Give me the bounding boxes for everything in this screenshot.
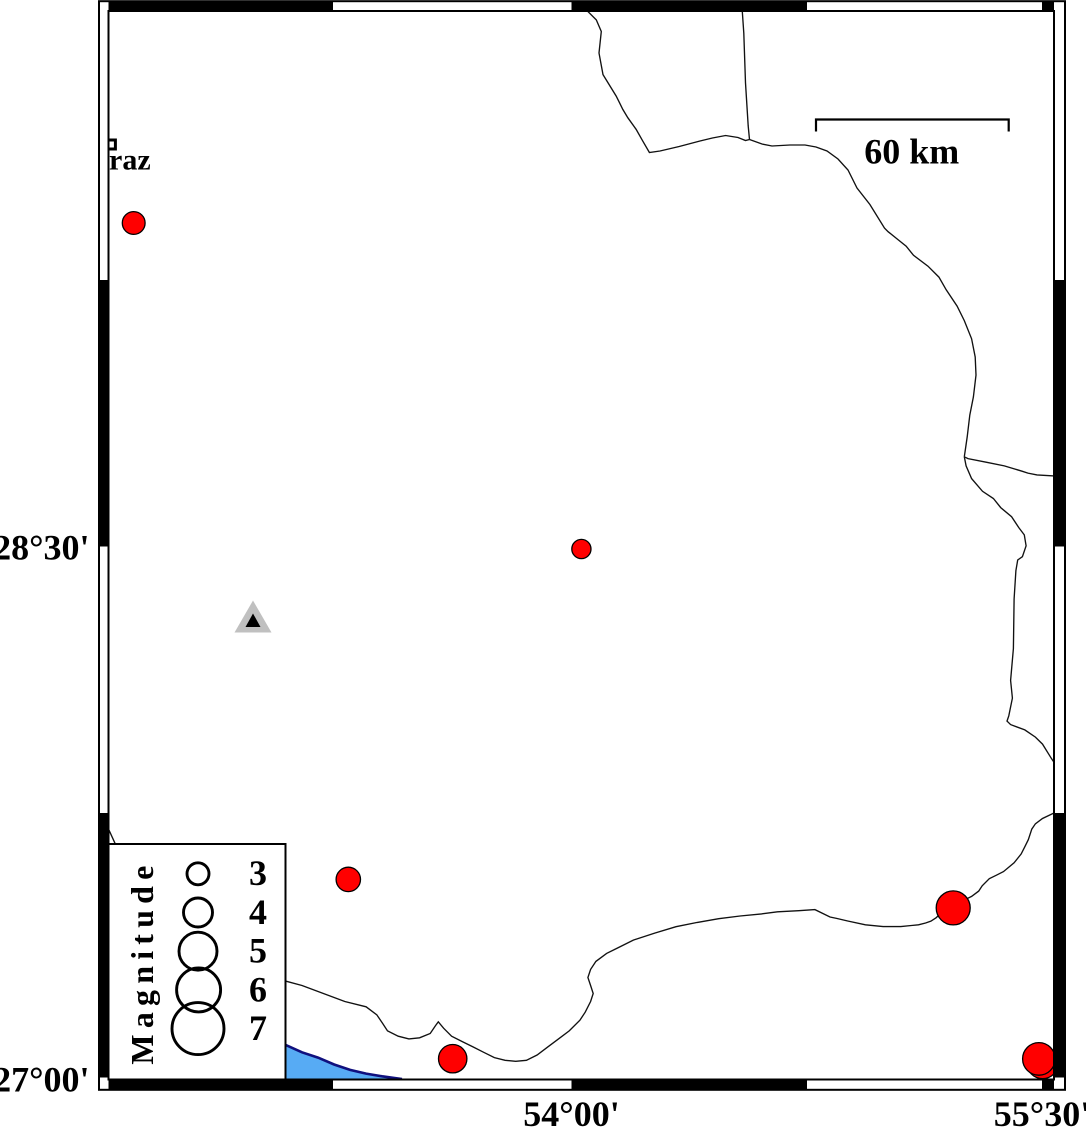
svg-text:raz: raz xyxy=(109,144,151,177)
svg-text:5: 5 xyxy=(249,931,267,971)
svg-text:6: 6 xyxy=(249,969,267,1009)
svg-text:Magnitude: Magnitude xyxy=(124,859,160,1064)
svg-text:3: 3 xyxy=(249,853,267,893)
svg-text:7: 7 xyxy=(249,1008,267,1048)
svg-text:27°00': 27°00' xyxy=(0,1060,90,1100)
svg-text:54°00': 54°00' xyxy=(523,1094,619,1129)
svg-text:55°30': 55°30' xyxy=(994,1094,1086,1129)
svg-text:60 km: 60 km xyxy=(864,132,959,172)
svg-text:4: 4 xyxy=(249,892,267,932)
svg-text:28°30': 28°30' xyxy=(0,528,90,568)
